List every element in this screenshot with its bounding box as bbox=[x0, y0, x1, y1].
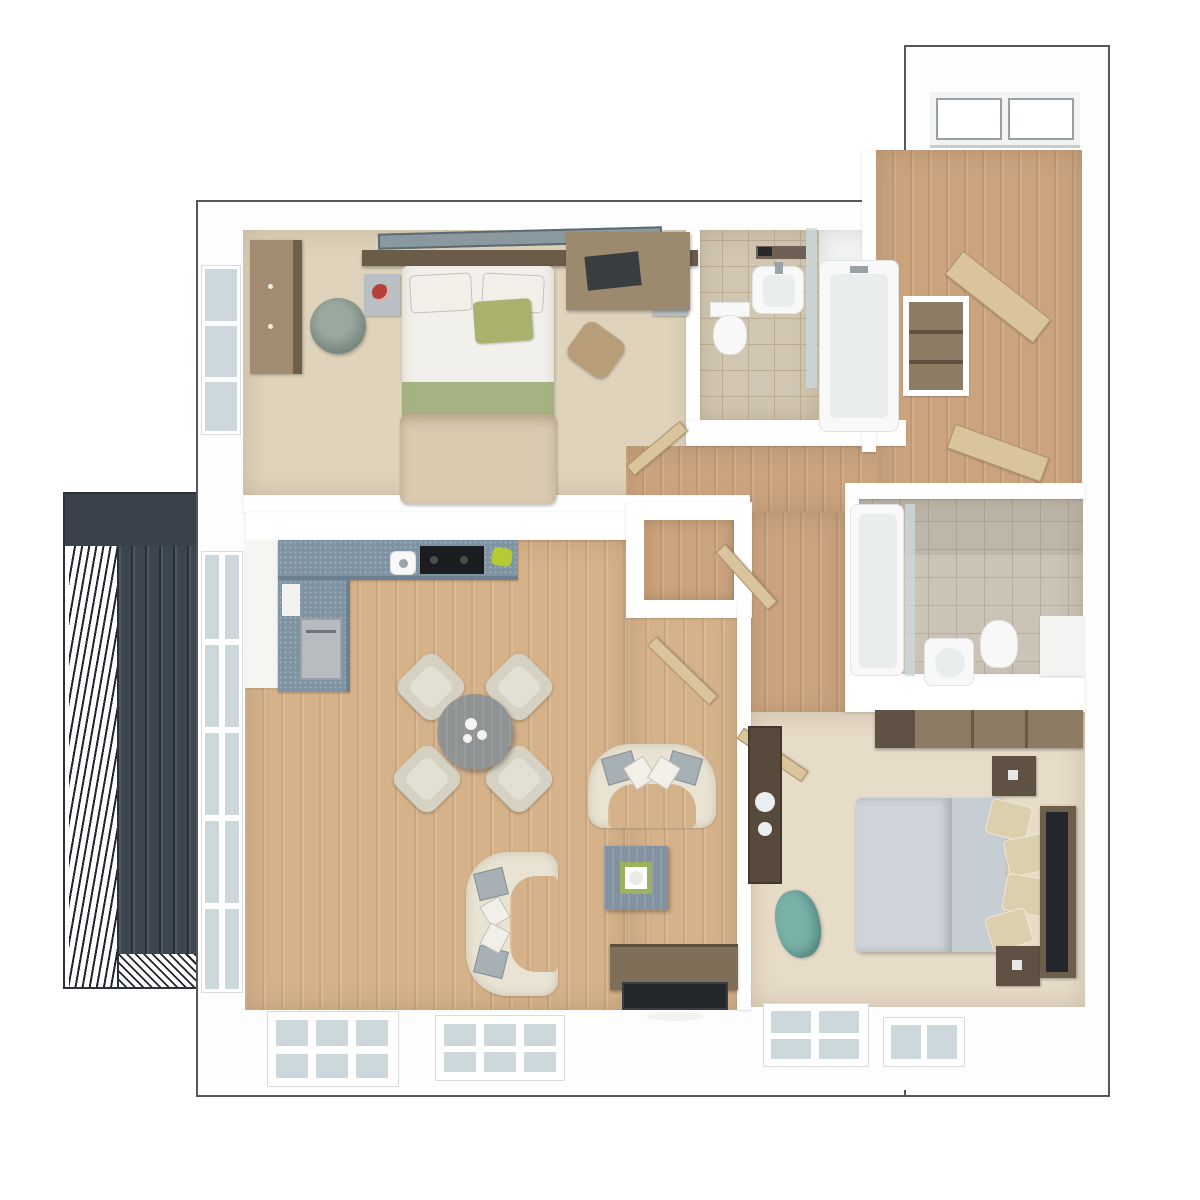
toilet-2 bbox=[980, 620, 1018, 668]
wall-living-top bbox=[245, 512, 628, 540]
dresser bbox=[875, 710, 1083, 748]
hallway-floor-lower bbox=[748, 512, 845, 715]
bed-1-pillow bbox=[409, 272, 473, 313]
bathroom-1-shelf bbox=[756, 246, 806, 259]
entrance-door-leaf bbox=[936, 98, 1002, 140]
laptop bbox=[584, 251, 641, 290]
wall-tv-frame bbox=[1040, 806, 1076, 978]
hall-closet bbox=[903, 296, 969, 396]
window-mullion bbox=[219, 555, 225, 989]
round-dining-table bbox=[437, 694, 513, 770]
bed-1-blanket bbox=[400, 414, 556, 504]
bedroom-2-window-1 bbox=[764, 1004, 868, 1066]
tableware bbox=[463, 734, 472, 743]
balcony-decking bbox=[119, 546, 197, 954]
hall-closet-shelves bbox=[909, 302, 963, 390]
tableware bbox=[465, 718, 477, 730]
bed-1-green-pillow bbox=[473, 298, 534, 344]
window-mullion bbox=[205, 377, 237, 382]
curved-sofa-2 bbox=[466, 852, 558, 996]
bed-1-green-throw bbox=[402, 382, 554, 418]
bathroom-2-vanity bbox=[1040, 616, 1084, 676]
decor-plate bbox=[620, 862, 652, 894]
shower-screen-2 bbox=[905, 504, 915, 676]
kitchen-counter-side bbox=[278, 580, 350, 692]
living-room-side-window bbox=[202, 552, 242, 992]
balcony-rail-hatch-bottom bbox=[119, 954, 197, 987]
basin-1-tap bbox=[775, 262, 783, 274]
toilet-1 bbox=[710, 302, 750, 358]
wall-tv-screen bbox=[1046, 812, 1068, 972]
shower-screen-1 bbox=[806, 228, 817, 388]
coffee-table bbox=[604, 846, 668, 910]
entrance-door-leaf bbox=[1008, 98, 1074, 140]
window-mullion bbox=[205, 321, 237, 326]
balcony-rail-hatch-left bbox=[69, 546, 119, 987]
double-bed-2 bbox=[856, 798, 1006, 952]
bedroom-2-window-2 bbox=[884, 1018, 964, 1066]
living-room-bottom-window-2 bbox=[436, 1016, 564, 1080]
bathtub-1 bbox=[819, 260, 899, 432]
balcony bbox=[63, 492, 199, 989]
curved-sofa-1 bbox=[588, 744, 716, 828]
living-room-bottom-window-1 bbox=[268, 1012, 398, 1086]
hob bbox=[420, 546, 484, 574]
wardrobe bbox=[250, 240, 302, 374]
wall-bathroom2-top bbox=[845, 483, 1085, 499]
kitchen-counter-top bbox=[278, 540, 518, 580]
floor-plan bbox=[0, 0, 1200, 1200]
nightstand-bottom bbox=[996, 946, 1040, 986]
storage-cupboard-floor bbox=[644, 520, 734, 600]
tableware bbox=[477, 730, 487, 740]
balcony-roof-block bbox=[65, 494, 197, 546]
kettle-green bbox=[491, 547, 513, 568]
table-lamp-left bbox=[372, 284, 389, 301]
entrance-door-recess bbox=[930, 92, 1080, 148]
bathtub-1-tap bbox=[850, 266, 868, 273]
bathtub-2 bbox=[850, 504, 904, 676]
tv-screen bbox=[622, 982, 728, 1010]
laundry-cabinet bbox=[748, 726, 782, 884]
double-bed-1 bbox=[402, 266, 554, 504]
kitchen-sink bbox=[390, 551, 416, 575]
toiletries bbox=[758, 247, 772, 256]
tv-stand bbox=[646, 1012, 704, 1021]
basin-2 bbox=[924, 638, 974, 686]
oven bbox=[300, 618, 342, 680]
cabinet-front bbox=[282, 584, 300, 616]
dressing-stool bbox=[310, 298, 366, 354]
basin-1 bbox=[752, 266, 804, 314]
nightstand-top bbox=[992, 756, 1036, 796]
bedroom-1-window bbox=[202, 266, 240, 434]
kitchen-cabinet-row bbox=[245, 540, 278, 688]
desk bbox=[566, 232, 690, 310]
